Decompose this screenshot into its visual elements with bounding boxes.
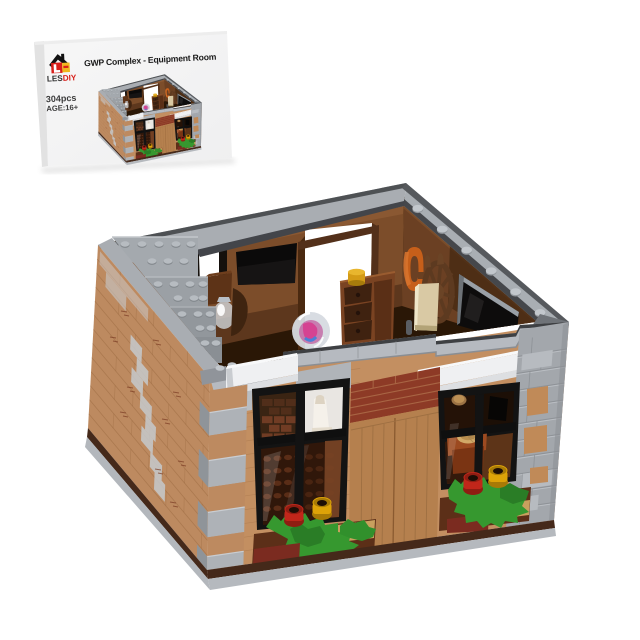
svg-text:LESDIY: LESDIY bbox=[47, 73, 78, 84]
svg-text:AGE:16+: AGE:16+ bbox=[46, 103, 79, 114]
